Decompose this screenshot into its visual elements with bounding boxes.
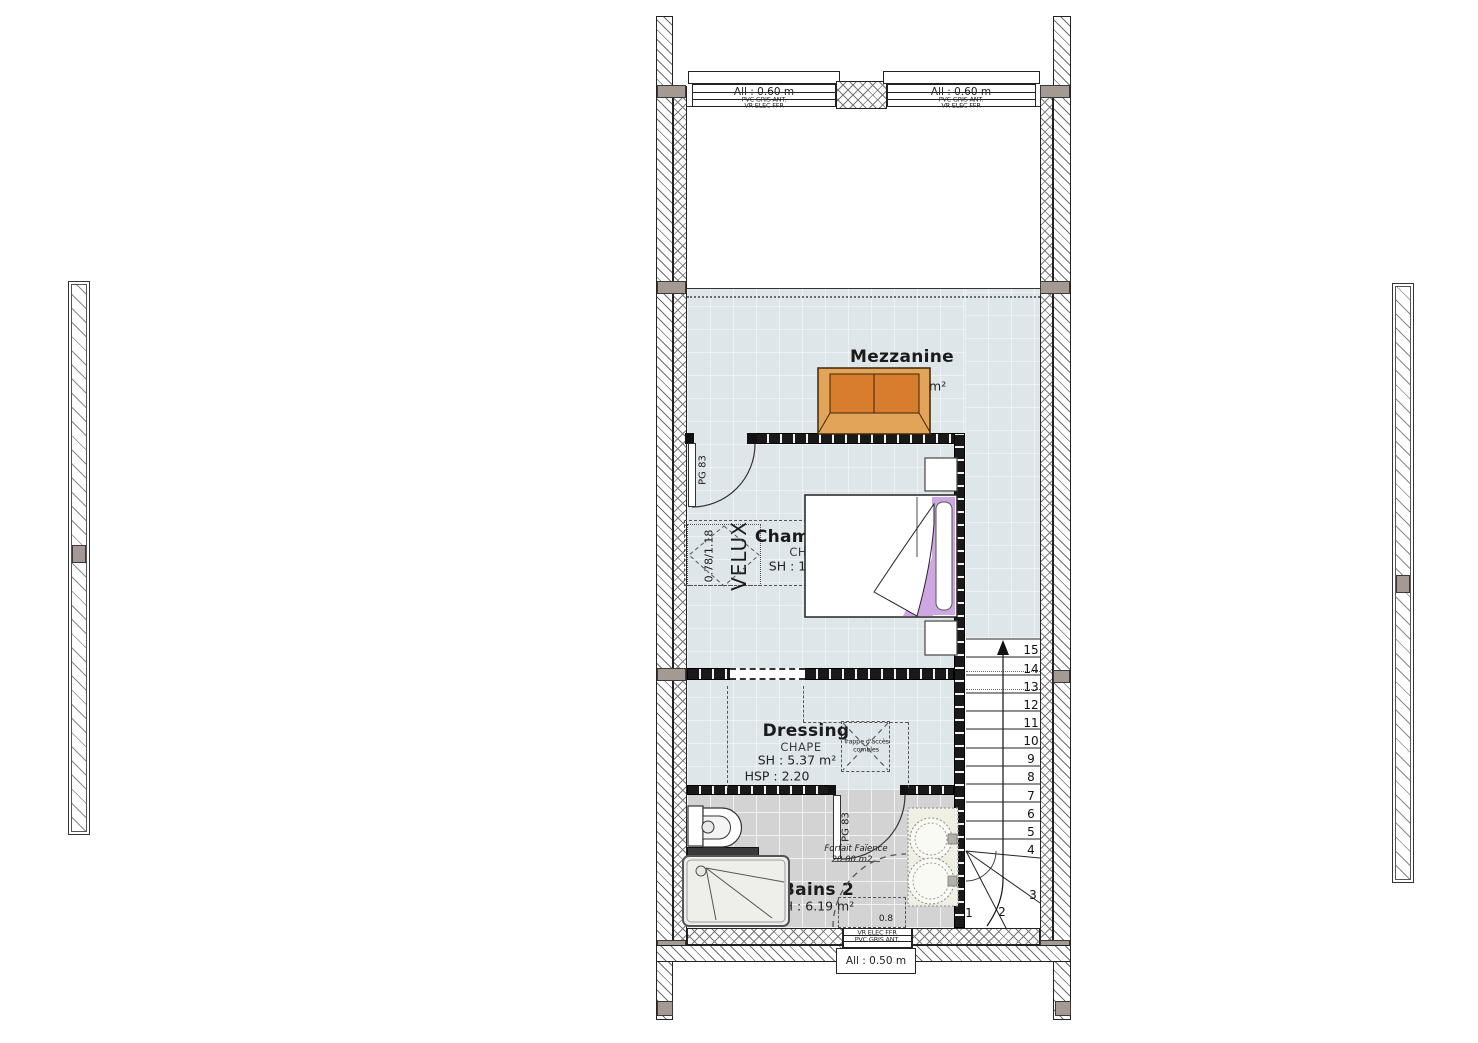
stair-step-number: 5 — [1027, 825, 1035, 839]
window-sill — [688, 71, 840, 84]
wall-post — [657, 668, 686, 681]
wall-toilet-half — [687, 847, 759, 856]
wall-chambre-north — [755, 433, 965, 444]
wall-post — [657, 1001, 673, 1016]
faience-leader-line — [832, 861, 880, 862]
door-ref-bains: PG 83 — [841, 812, 852, 842]
wall-chambre-dressing — [687, 668, 954, 680]
bottom-wall-outer-right — [912, 945, 1071, 962]
faience-label: Forfait Faïence — [824, 844, 887, 854]
party-wall-left-post — [72, 545, 86, 563]
exterior-wall-right-inner — [1040, 86, 1053, 950]
window-shutter-label: VR ELEC FFR — [941, 103, 980, 110]
door-jamb — [828, 785, 836, 795]
bottom-wall-outer-left — [656, 945, 843, 962]
party-wall-right-post — [1396, 575, 1410, 593]
party-wall-right — [1392, 283, 1414, 883]
wall-dressing-bains-right — [904, 785, 954, 795]
window-sill — [883, 71, 1040, 84]
stair-step-number: 7 — [1027, 789, 1035, 803]
bottom-wall-inner-left — [687, 928, 843, 945]
room-name-chambre1: Chambre 1 — [755, 527, 861, 547]
window-allege-label: All : 0.50 m — [846, 955, 906, 967]
window-material-label: PVC GRIS ANT. — [855, 937, 900, 944]
room-name-mezzanine: Mezzanine — [850, 347, 954, 367]
exterior-wall-left-inner — [673, 86, 687, 950]
wall-post — [657, 85, 686, 98]
stair-step-number: 15 — [1023, 643, 1038, 657]
room-area-chambre1: SH : 10.89 m² — [769, 559, 855, 574]
party-wall-left-hatch — [71, 284, 87, 832]
room-height-dressing: HSP : 2.20 — [745, 769, 810, 784]
wall-post — [657, 281, 686, 294]
mezzanine-edge-line — [687, 288, 1040, 289]
stair-step-number: 1 — [965, 906, 973, 920]
faience-area-label: 20.00 m2 — [832, 855, 873, 865]
floor-plan: All : 0.60 m PVC GRIS ANT. VR ELEC FFR A… — [0, 0, 1478, 1043]
bottom-wall-inner-right — [912, 928, 1040, 945]
wall-post — [1053, 670, 1070, 683]
room-name-bains2: Bains 2 — [782, 880, 854, 900]
party-wall-right-hatch — [1395, 286, 1411, 880]
stair-step-number: 6 — [1027, 807, 1035, 821]
wall-post — [1040, 85, 1070, 98]
stair-step-number: 9 — [1027, 752, 1035, 766]
party-wall-left — [68, 281, 90, 835]
wall-stair-separation — [954, 433, 965, 928]
stair-step-number: 3 — [1029, 888, 1037, 902]
stair-step-number: 2 — [998, 905, 1006, 919]
floor-landing — [965, 288, 1040, 638]
stair-step-number: 8 — [1027, 770, 1035, 784]
stair-step-number: 13 — [1023, 680, 1038, 694]
wall-post — [1055, 1001, 1071, 1016]
wall-dressing-bains-left — [687, 785, 833, 795]
facade-pier — [836, 81, 887, 109]
velux-label: VELUX — [727, 521, 751, 591]
room-finish-chambre1: CHAPE — [789, 545, 830, 559]
exterior-wall-left-outer — [656, 16, 673, 1020]
room-area-dressing: SH : 5.37 m² — [758, 753, 837, 768]
wall-opening-dashed — [730, 668, 805, 680]
slope-dashed-line — [803, 686, 804, 722]
room-area-mezzanine: SH : 11.87 m² — [860, 379, 946, 394]
stair-step-number: 10 — [1023, 734, 1038, 748]
exterior-wall-right-outer — [1053, 16, 1071, 1020]
stair-step-number: 4 — [1027, 843, 1035, 857]
slope-dashed-line — [727, 686, 728, 788]
room-name-dressing: Dressing — [763, 721, 850, 741]
stair-step-number: 11 — [1023, 716, 1038, 730]
room-area-bains2: SH : 6.19 m² — [776, 899, 855, 914]
attic-hatch-label: combles — [853, 747, 879, 754]
window-shutter-label: VR ELEC FFR — [744, 103, 783, 110]
door-jamb — [747, 433, 757, 444]
stair-step-number: 12 — [1023, 698, 1038, 712]
velux-size-label: 0.78/1.18 — [703, 530, 716, 583]
room-finish-mezzanine: CHAPE — [884, 365, 925, 379]
door-jamb — [900, 785, 908, 795]
slope-dashed-line — [908, 722, 909, 788]
door-ref-chambre: PG 83 — [698, 455, 709, 485]
wall-post — [1040, 281, 1070, 294]
void-boundary-dotted — [687, 296, 1040, 298]
stair-step-number: 14 — [1023, 662, 1038, 676]
attic-hatch-label: Trappe d'accès — [843, 739, 889, 746]
door-leaf-chambre — [688, 443, 696, 507]
